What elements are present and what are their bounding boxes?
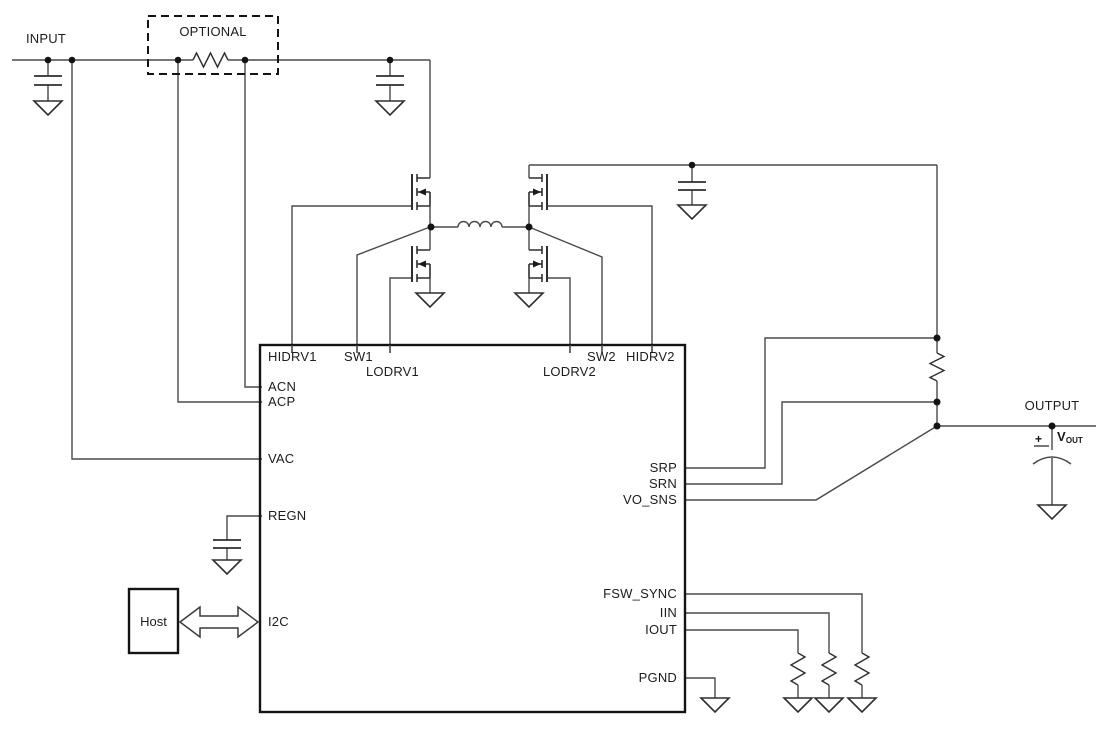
pin-label-vac: VAC bbox=[268, 452, 294, 466]
optional-label: OPTIONAL bbox=[148, 25, 278, 39]
acn-wire bbox=[245, 60, 262, 387]
ground-regn-cap bbox=[213, 560, 241, 574]
body-diode-arrow bbox=[418, 189, 426, 196]
ground-iin bbox=[815, 698, 843, 712]
vout-label: VOUT bbox=[1057, 430, 1083, 448]
ground-lowfet-right bbox=[515, 293, 543, 307]
vac-wire bbox=[72, 60, 262, 459]
acp-wire bbox=[178, 60, 262, 402]
iout-wire bbox=[685, 630, 798, 698]
iout-program-resistor bbox=[791, 653, 805, 685]
pin-label-pgnd: PGND bbox=[557, 671, 677, 685]
pin-label-sw2: SW2 bbox=[587, 350, 616, 364]
pin-label-fsw-sync: FSW_SYNC bbox=[557, 587, 677, 601]
iin-wire bbox=[685, 613, 829, 698]
input-cap2 bbox=[376, 76, 404, 85]
hidrv1-wire bbox=[292, 206, 412, 353]
inductor-coil bbox=[458, 222, 502, 228]
pin-label-regn: REGN bbox=[268, 509, 306, 523]
pin-label-acp: ACP bbox=[268, 395, 295, 409]
vout-plus-sign: + bbox=[1035, 432, 1042, 446]
hidrv2-wire bbox=[547, 206, 652, 353]
vo-sns-wire bbox=[685, 426, 937, 500]
input-cap1 bbox=[34, 76, 62, 85]
schematic-canvas: INPUT OPTIONAL OUTPUT HIDRV1 SW1 LODRV1 … bbox=[0, 0, 1100, 732]
pin-label-iin: IIN bbox=[557, 606, 677, 620]
iin-program-resistor bbox=[822, 653, 836, 685]
ground-input-cap1 bbox=[34, 101, 62, 115]
body-diode-arrow bbox=[418, 261, 426, 268]
fsw-sync-wire bbox=[685, 594, 862, 698]
body-diode-arrow bbox=[533, 261, 541, 268]
mosfet-q4-lowside-right bbox=[529, 246, 547, 282]
ground-fsw bbox=[848, 698, 876, 712]
fsw-program-resistor bbox=[855, 653, 869, 685]
ground-lowfet-left bbox=[416, 293, 444, 307]
pgnd-wire bbox=[685, 678, 715, 698]
lodrv2-wire bbox=[547, 278, 570, 353]
charger-ic-box bbox=[260, 345, 685, 712]
output-cap bbox=[678, 182, 706, 190]
pin-label-lodrv2: LODRV2 bbox=[543, 365, 596, 379]
pin-label-lodrv1: LODRV1 bbox=[366, 365, 419, 379]
pin-label-srn: SRN bbox=[557, 477, 677, 491]
i2c-bidirectional-arrow bbox=[180, 607, 258, 637]
regn-cap bbox=[213, 540, 241, 548]
body-diode-arrow bbox=[533, 189, 541, 196]
pin-label-i2c: I2C bbox=[268, 615, 289, 629]
ground-output-cap bbox=[678, 205, 706, 219]
ground-iout bbox=[784, 698, 812, 712]
pin-label-acn: ACN bbox=[268, 380, 296, 394]
sw1-wire bbox=[357, 227, 430, 353]
pin-label-vo-sns: VO_SNS bbox=[557, 493, 677, 507]
ground-pgnd bbox=[701, 698, 729, 712]
optional-sense-resistor bbox=[193, 53, 228, 67]
output-label: OUTPUT bbox=[1002, 399, 1100, 413]
ground-input-cap2 bbox=[376, 101, 404, 115]
pin-label-sw1: SW1 bbox=[344, 350, 373, 364]
pin-label-hidrv1: HIDRV1 bbox=[268, 350, 317, 364]
mosfet-q3-highside-right bbox=[529, 174, 547, 210]
mosfet-q2-lowside-left bbox=[412, 246, 430, 282]
ground-battery bbox=[1038, 505, 1066, 519]
pin-label-hidrv2: HIDRV2 bbox=[626, 350, 675, 364]
pin-label-iout: IOUT bbox=[557, 623, 677, 637]
output-sense-resistor bbox=[930, 353, 944, 381]
pin-label-srp: SRP bbox=[557, 461, 677, 475]
srn-wire bbox=[685, 402, 937, 484]
mosfet-q1-highside-left bbox=[412, 174, 430, 210]
host-label: Host bbox=[129, 589, 178, 653]
input-label: INPUT bbox=[26, 32, 66, 46]
sw2-wire bbox=[529, 227, 602, 353]
lodrv1-wire bbox=[390, 278, 412, 353]
regn-wire bbox=[227, 516, 262, 560]
